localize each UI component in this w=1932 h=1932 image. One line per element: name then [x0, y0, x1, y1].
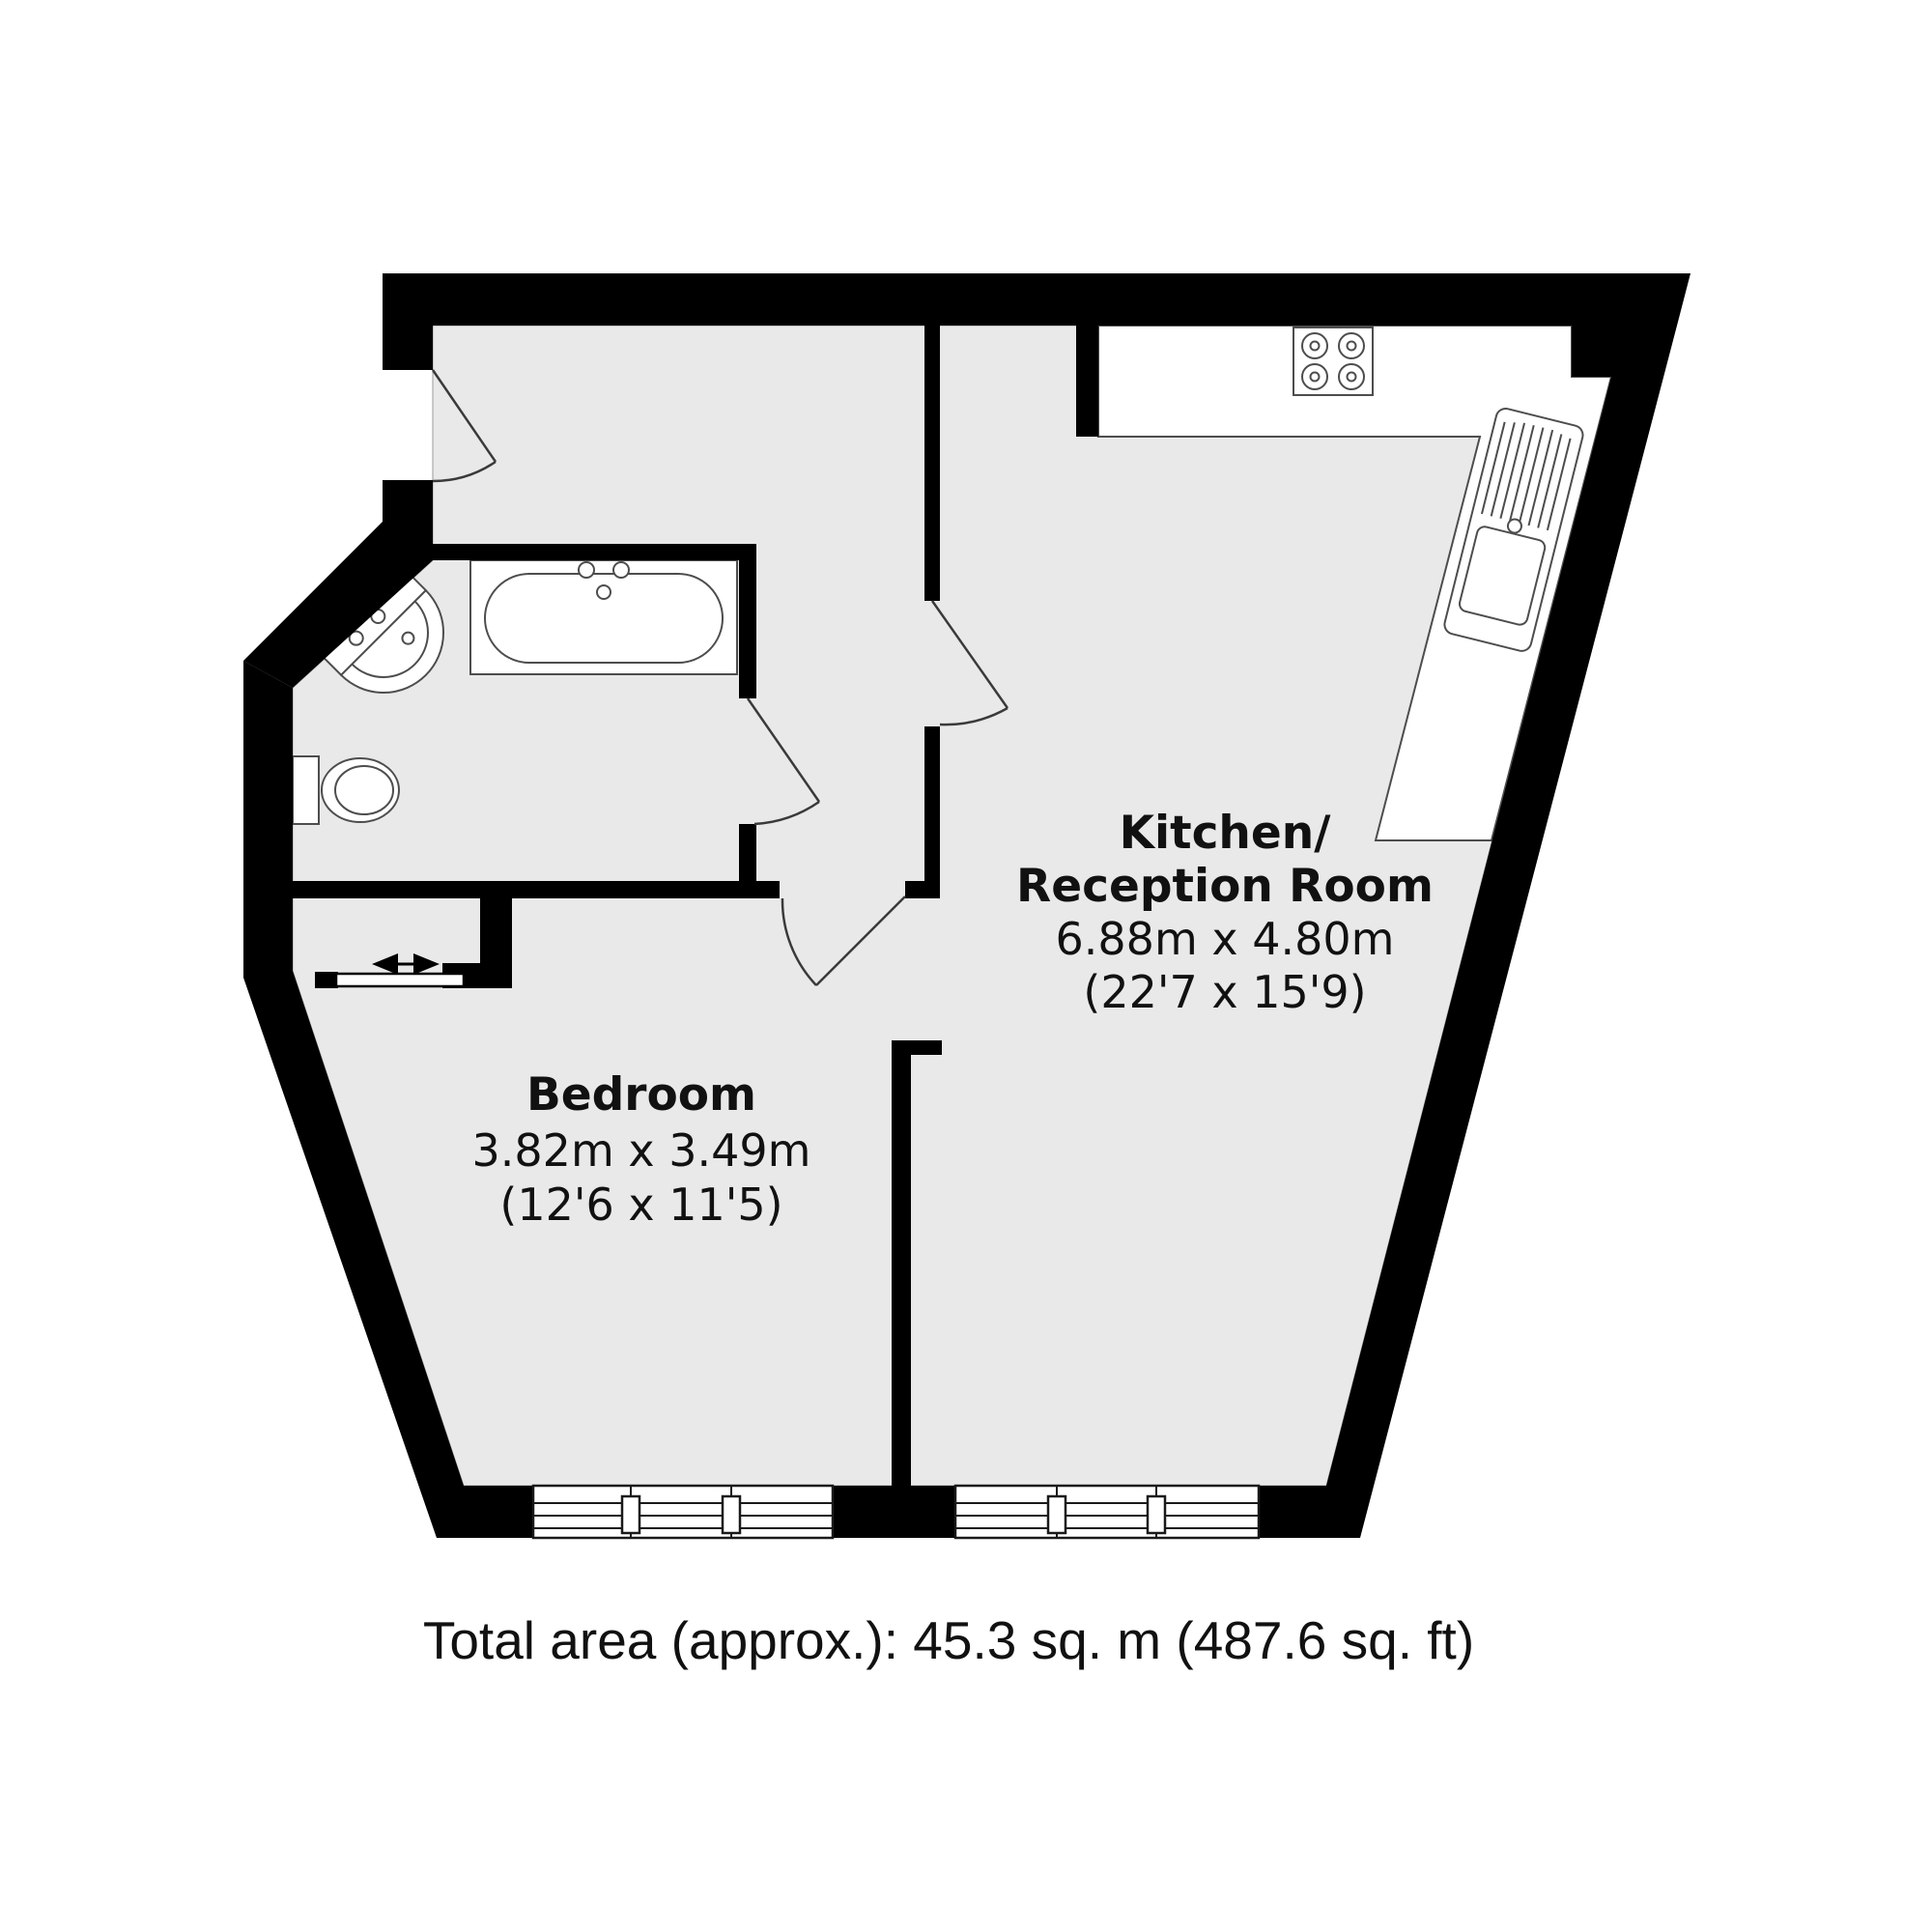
wall-segment: [293, 881, 780, 898]
wall-segment: [924, 326, 940, 601]
wall-segment: [739, 560, 756, 698]
kitchen-label-line2: Reception Room: [1016, 860, 1434, 913]
kitchen-dimensions-metric: 6.88m x 4.80m: [1056, 913, 1395, 965]
bedroom-dimensions-metric: 3.82m x 3.49m: [472, 1124, 811, 1177]
wall-segment: [433, 544, 756, 560]
floorplan-page: Kitchen/ Reception Room 6.88m x 4.80m (2…: [0, 0, 1932, 1932]
bedroom-dimensions-imperial: (12'6 x 11'5): [499, 1179, 782, 1231]
floorplan-drawing: Kitchen/ Reception Room 6.88m x 4.80m (2…: [0, 0, 1932, 1932]
wall-segment: [892, 1040, 911, 1486]
wall-segment: [924, 726, 940, 898]
wall-segment: [315, 972, 338, 988]
total-area-label: Total area (approx.): 45.3 sq. m (487.6 …: [423, 1610, 1474, 1670]
bathtub-icon: [470, 560, 737, 674]
kitchen-label-line1: Kitchen/: [1120, 807, 1332, 860]
kitchen-dimensions-imperial: (22'7 x 15'9): [1083, 966, 1366, 1018]
hob-icon: [1293, 327, 1373, 395]
wall-segment: [833, 1486, 955, 1538]
window-kitchen: [955, 1486, 1259, 1538]
wall-segment: [1076, 326, 1098, 437]
toilet-icon: [293, 756, 399, 824]
wall-segment: [480, 898, 512, 988]
window-bedroom: [533, 1486, 833, 1538]
wall-segment: [383, 273, 433, 370]
bedroom-label: Bedroom: [526, 1068, 756, 1122]
wall-segment: [383, 273, 1690, 326]
